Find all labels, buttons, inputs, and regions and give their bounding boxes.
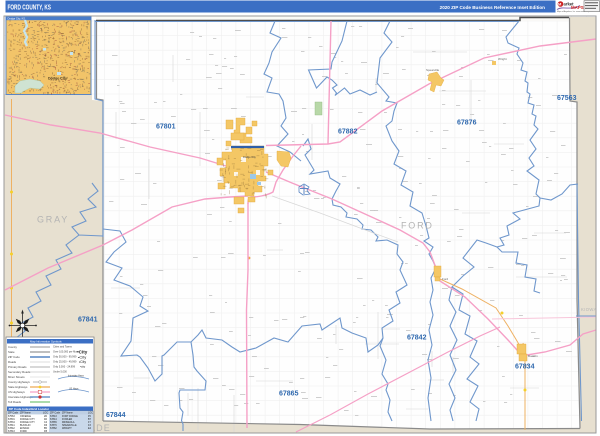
svg-text:Map Information Symbols: Map Information Symbols xyxy=(30,340,62,344)
svg-text:67843: 67843 xyxy=(8,430,15,433)
svg-text:FORD: FORD xyxy=(20,430,27,433)
svg-text:Secondary Roads: Secondary Roads xyxy=(8,370,31,374)
svg-text:Dodge City, KS: Dodge City, KS xyxy=(8,17,26,21)
svg-text:Dodge City: Dodge City xyxy=(243,155,257,159)
svg-text:FORD: FORD xyxy=(401,221,434,231)
svg-text:67844: 67844 xyxy=(106,412,126,419)
svg-text:Cities and Towns: Cities and Towns xyxy=(53,346,73,349)
svg-text:67563: 67563 xyxy=(557,95,577,102)
svg-text:KIOWA: KIOWA xyxy=(581,307,597,312)
svg-text:•city: •city xyxy=(80,365,86,369)
svg-text:County Highways: County Highways xyxy=(8,380,30,384)
svg-text:Ford: Ford xyxy=(442,277,449,281)
svg-text:2020 ZIP Code Business Referen: 2020 ZIP Code Business Reference Inset E… xyxy=(440,5,546,10)
svg-text:Only 5,000 - 24,999: Only 5,000 - 24,999 xyxy=(53,366,76,369)
svg-text:67834: 67834 xyxy=(515,364,535,371)
svg-text:FORD COUNTY, KS: FORD COUNTY, KS xyxy=(7,5,51,12)
svg-text:Interstate Hwys: Interstate Hwys xyxy=(68,375,85,378)
svg-text:67882: 67882 xyxy=(50,427,57,430)
svg-text:ZIP Code Index/Grid Locator: ZIP Code Index/Grid Locator xyxy=(9,407,50,411)
svg-text:67841: 67841 xyxy=(78,317,98,324)
svg-text:ZIP Code: ZIP Code xyxy=(8,355,20,359)
svg-text:Bucklin: Bucklin xyxy=(528,354,538,358)
svg-text:67876: 67876 xyxy=(457,120,477,127)
svg-text:State Highways: State Highways xyxy=(8,385,28,389)
svg-text:Spearville: Spearville xyxy=(426,68,440,72)
svg-text:67882: 67882 xyxy=(338,129,358,136)
svg-text:WRIGHT: WRIGHT xyxy=(62,427,72,430)
svg-text:State: State xyxy=(8,350,15,354)
svg-text:Wright: Wright xyxy=(498,57,507,61)
svg-text:Only 50,000 - 99,999: Only 50,000 - 99,999 xyxy=(53,356,77,359)
svg-text:Roads: Roads xyxy=(8,360,17,364)
svg-text:•City: •City xyxy=(79,360,86,364)
svg-text:Dodge City: Dodge City xyxy=(48,77,67,81)
svg-text:MAPS: MAPS xyxy=(571,5,584,10)
svg-text:Only 25,000 - 49,999: Only 25,000 - 49,999 xyxy=(53,361,77,364)
svg-text:Primary Roads: Primary Roads xyxy=(8,365,27,369)
svg-text:County: County xyxy=(8,345,17,349)
svg-text:67842: 67842 xyxy=(407,335,427,342)
svg-text:Interstate Highways: Interstate Highways xyxy=(8,395,33,399)
svg-text:Over 100,000 per More: Over 100,000 per More xyxy=(53,351,79,354)
svg-text:US Hwys: US Hwys xyxy=(69,389,79,391)
svg-text:67801: 67801 xyxy=(156,124,176,131)
svg-text:Under 5,000: Under 5,000 xyxy=(53,371,67,374)
svg-text:Minor Streets: Minor Streets xyxy=(8,375,25,379)
svg-text:US Highways: US Highways xyxy=(8,390,25,394)
svg-text:•City: •City xyxy=(78,355,86,360)
svg-text:67865: 67865 xyxy=(279,391,299,398)
svg-text:GRAY: GRAY xyxy=(37,215,69,225)
svg-text:Toll Roads: Toll Roads xyxy=(8,400,22,404)
